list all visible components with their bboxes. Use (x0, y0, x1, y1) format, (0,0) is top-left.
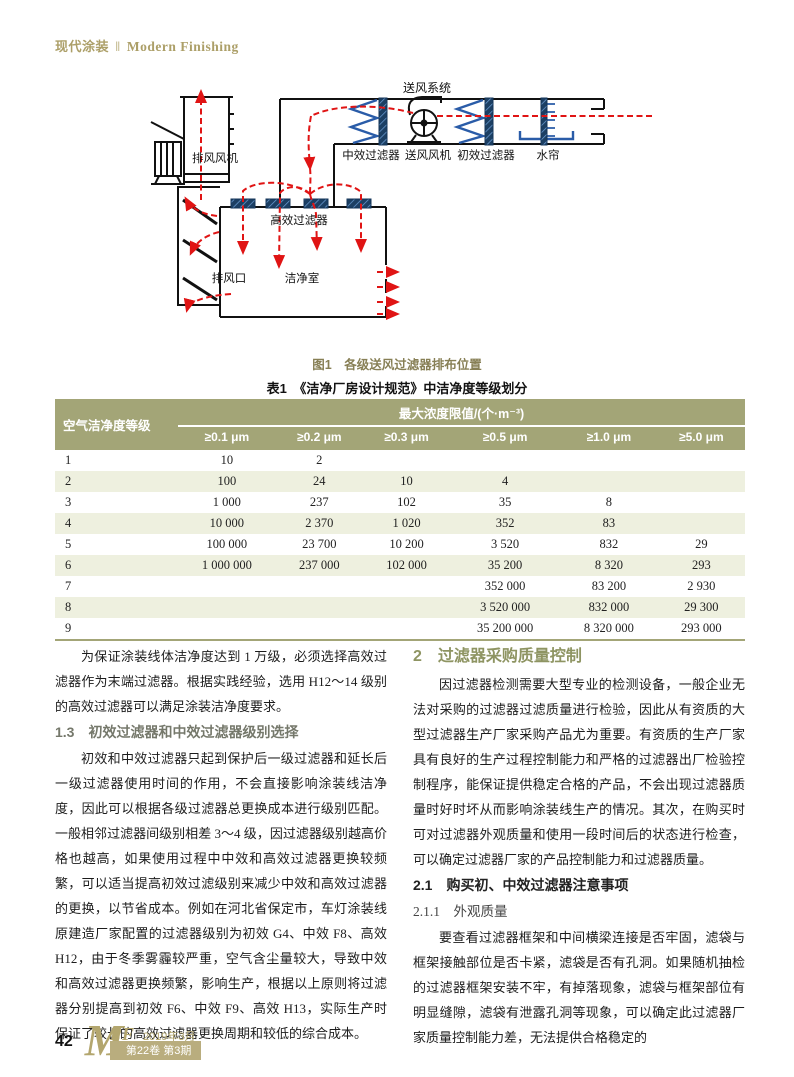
table-row: 7352 00083 2002 930 (55, 576, 745, 597)
value-cell: 3 520 (450, 534, 560, 555)
value-cell (178, 597, 276, 618)
value-cell: 83 200 (560, 576, 658, 597)
grade-cell: 4 (55, 513, 178, 534)
col-header-um: ≥1.0 μm (560, 426, 658, 450)
col-header-grade: 空气洁净度等级 (55, 399, 178, 450)
table-row: 210024104 (55, 471, 745, 492)
value-cell: 83 (560, 513, 658, 534)
value-cell: 2 (276, 450, 363, 471)
value-cell: 8 (560, 492, 658, 513)
value-cell: 1 020 (363, 513, 450, 534)
value-cell: 237 000 (276, 555, 363, 576)
value-cell: 35 (450, 492, 560, 513)
figure-1: 送风系统 排风风机 中效过滤器 送风风机 初效过滤器 水帘 高效过滤器 排风口 … (0, 82, 794, 373)
value-cell: 8 320 (560, 555, 658, 576)
value-cell (276, 618, 363, 640)
paragraph: 为保证涂装线体洁净度达到 1 万级，必须选择高效过滤器作为末端过滤器。根据实践经… (55, 644, 387, 719)
value-cell (658, 450, 745, 471)
value-cell: 29 300 (658, 597, 745, 618)
value-cell: 237 (276, 492, 363, 513)
airflow-lines (186, 92, 652, 314)
table-row: 31 000237102358 (55, 492, 745, 513)
table-row: 5100 00023 70010 2003 52083229 (55, 534, 745, 555)
value-cell (178, 618, 276, 640)
col-header-um: ≥0.2 μm (276, 426, 363, 450)
paragraph: 要查看过滤器框架和中间横梁连接是否牢固，滤袋与框架接触部位是否卡紧，滤袋是否有孔… (413, 925, 745, 1050)
value-cell: 8 320 000 (560, 618, 658, 640)
value-cell (658, 471, 745, 492)
value-cell: 1 000 (178, 492, 276, 513)
volume-issue: 第22卷 第3期 (110, 1041, 201, 1060)
label-exhaust-fan: 排风风机 (192, 151, 238, 165)
label-supply-fan: 送风风机 (405, 148, 451, 162)
table-row: 935 200 0008 320 000293 000 (55, 618, 745, 640)
figure-caption: 图1 各级送风过滤器排布位置 (0, 354, 794, 373)
grade-cell: 2 (55, 471, 178, 492)
col-header-um: ≥0.3 μm (363, 426, 450, 450)
article-body: 为保证涂装线体洁净度达到 1 万级，必须选择高效过滤器作为末端过滤器。根据实践经… (55, 644, 745, 1050)
table-title: 表1 《洁净厂房设计规范》中洁净度等级划分 (0, 378, 794, 397)
journal-header: 现代涂装‖Modern Finishing (55, 36, 239, 55)
value-cell (276, 576, 363, 597)
value-cell (363, 450, 450, 471)
value-cell: 10 (178, 450, 276, 471)
col-header-um: ≥0.5 μm (450, 426, 560, 450)
journal-title-cn: 现代涂装 (55, 39, 109, 54)
value-cell: 832 000 (560, 597, 658, 618)
value-cell: 1 000 000 (178, 555, 276, 576)
col-header-um: ≥0.1 μm (178, 426, 276, 450)
value-cell (363, 597, 450, 618)
grade-cell: 9 (55, 618, 178, 640)
label-supply-system: 送风系统 (403, 82, 451, 95)
value-cell (178, 576, 276, 597)
header-separator: ‖ (115, 39, 121, 54)
col-header-um: ≥5.0 μm (658, 426, 745, 450)
value-cell (560, 471, 658, 492)
value-cell (363, 618, 450, 640)
label-water-curtain: 水帘 (537, 148, 560, 162)
hepa-box (266, 199, 290, 208)
grade-cell: 3 (55, 492, 178, 513)
value-cell: 10 (363, 471, 450, 492)
section-heading: 2.1.1 外观质量 (413, 899, 745, 924)
hepa-box (304, 199, 328, 208)
page-number: 42 (55, 1033, 73, 1051)
table-row: 410 0002 3701 02035283 (55, 513, 745, 534)
section-heading: 1.3 初效过滤器和中效过滤器级别选择 (55, 720, 387, 745)
value-cell: 352 000 (450, 576, 560, 597)
value-cell: 100 000 (178, 534, 276, 555)
value-cell: 10 000 (178, 513, 276, 534)
table-row: 61 000 000237 000102 00035 2008 320293 (55, 555, 745, 576)
section-heading: 2 过滤器采购质量控制 (413, 644, 745, 669)
cleanliness-grade-table: 空气洁净度等级 最大浓度限值/(个·m⁻³) ≥0.1 μm ≥0.2 μm ≥… (55, 399, 745, 641)
page-footer: 42 M PF 2019年3月 第22卷 第3期 (55, 1024, 201, 1060)
paragraph: 初效和中效过滤器只起到保护后一级过滤器和延长后一级过滤器使用时间的作用，不会直接… (55, 746, 387, 1046)
value-cell: 352 (450, 513, 560, 534)
diagram-labels: 送风系统 排风风机 中效过滤器 送风风机 初效过滤器 水帘 高效过滤器 排风口 … (192, 82, 560, 285)
value-cell: 2 370 (276, 513, 363, 534)
value-cell (363, 576, 450, 597)
table-row: 1102 (55, 450, 745, 471)
value-cell (658, 492, 745, 513)
value-cell: 832 (560, 534, 658, 555)
value-cell: 3 520 000 (450, 597, 560, 618)
filter-arrangement-diagram: 送风系统 排风风机 中效过滤器 送风风机 初效过滤器 水帘 高效过滤器 排风口 … (139, 82, 655, 344)
journal-title-en: Modern Finishing (127, 39, 239, 54)
label-hepa-filter: 高效过滤器 (270, 213, 328, 227)
value-cell: 293 (658, 555, 745, 576)
grade-cell: 8 (55, 597, 178, 618)
value-cell (560, 450, 658, 471)
grade-cell: 1 (55, 450, 178, 471)
label-primary-filter: 初效过滤器 (457, 148, 515, 162)
value-cell: 10 200 (363, 534, 450, 555)
value-cell: 100 (178, 471, 276, 492)
table-row: 83 520 000832 00029 300 (55, 597, 745, 618)
journal-logo: M PF 2019年3月 第22卷 第3期 (85, 1024, 202, 1060)
value-cell (450, 450, 560, 471)
value-cell: 29 (658, 534, 745, 555)
grade-cell: 6 (55, 555, 178, 576)
label-exhaust-outlet: 排风口 (212, 271, 247, 285)
value-cell (276, 597, 363, 618)
column-right: 2 过滤器采购质量控制因过滤器检测需要大型专业的检测设备，一般企业无法对采购的过… (413, 644, 745, 1050)
label-medium-filter: 中效过滤器 (342, 148, 400, 162)
paragraph: 因过滤器检测需要大型专业的检测设备，一般企业无法对采购的过滤器过滤质量进行检验，… (413, 672, 745, 872)
hepa-box (347, 199, 371, 208)
value-cell: 24 (276, 471, 363, 492)
col-header-max-concentration: 最大浓度限值/(个·m⁻³) (178, 399, 745, 426)
value-cell: 102 (363, 492, 450, 513)
value-cell (658, 513, 745, 534)
value-cell: 35 200 (450, 555, 560, 576)
value-cell: 23 700 (276, 534, 363, 555)
value-cell: 35 200 000 (450, 618, 560, 640)
value-cell: 102 000 (363, 555, 450, 576)
value-cell: 4 (450, 471, 560, 492)
section-heading: 2.1 购买初、中效过滤器注意事项 (413, 873, 745, 898)
label-clean-room: 洁净室 (285, 271, 320, 285)
journal-page: 现代涂装‖Modern Finishing (0, 0, 794, 1077)
value-cell: 2 930 (658, 576, 745, 597)
grade-cell: 7 (55, 576, 178, 597)
grade-cell: 5 (55, 534, 178, 555)
value-cell: 293 000 (658, 618, 745, 640)
column-left: 为保证涂装线体洁净度达到 1 万级，必须选择高效过滤器作为末端过滤器。根据实践经… (55, 644, 387, 1050)
